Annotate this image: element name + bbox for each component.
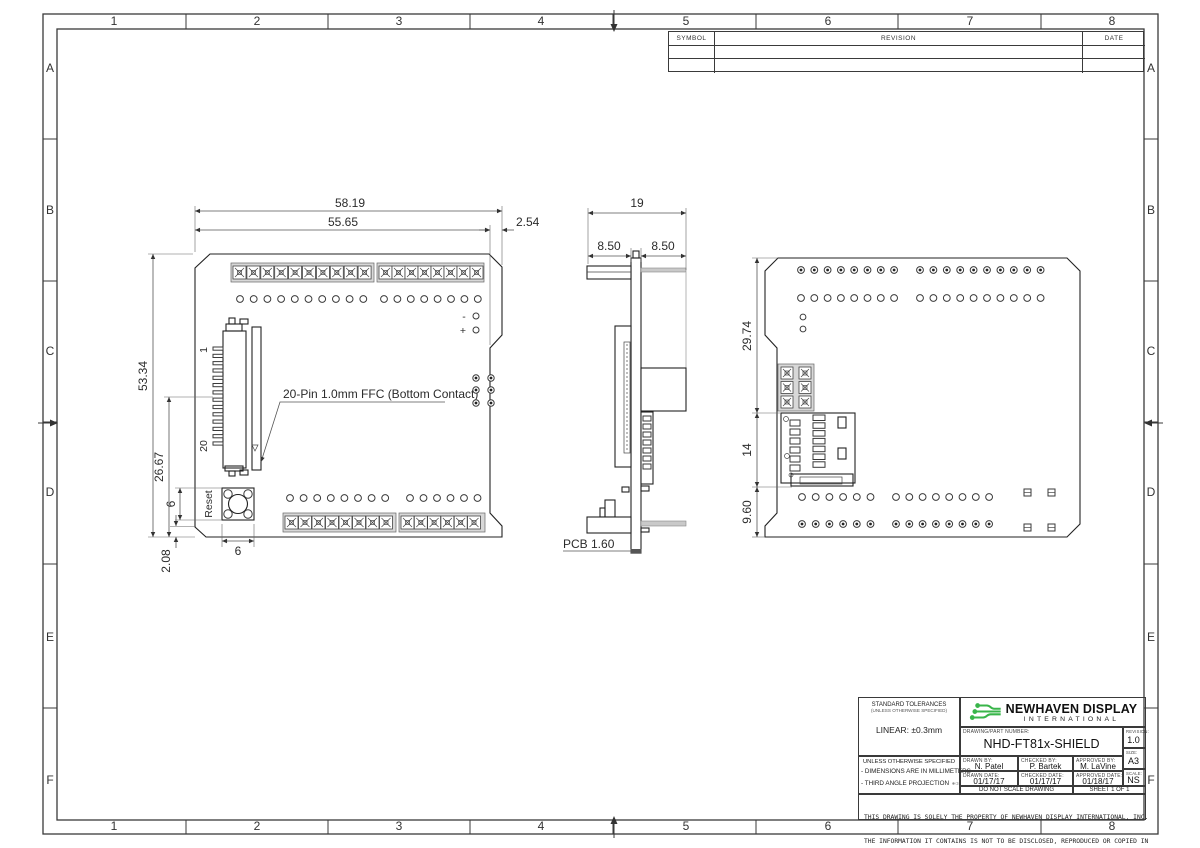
through-hole — [838, 295, 845, 302]
grid-row-label: C — [1147, 344, 1156, 358]
solder-pad-center — [869, 523, 872, 526]
dim-front-ffc-offset: 26.67 — [152, 452, 166, 482]
through-hole — [812, 494, 819, 501]
through-hole — [250, 296, 257, 303]
solder-pad-center — [842, 523, 845, 526]
contact — [643, 432, 651, 437]
contact — [643, 456, 651, 461]
grid-column-label: 1 — [111, 14, 118, 28]
grid-row-label: D — [46, 485, 55, 499]
ffc-side — [615, 326, 631, 467]
through-hole — [799, 494, 806, 501]
revision-row-cell — [715, 46, 1083, 59]
contact — [643, 448, 651, 453]
logo-cell: NEWHAVEN DISPLAY INTERNATIONAL — [960, 697, 1146, 727]
drawn-date-cell: DRAWN DATE: 01/17/17 — [960, 771, 1018, 786]
size-cell: SIZE: A3 — [1123, 748, 1146, 769]
through-hole — [800, 326, 806, 332]
solder-pad-center — [801, 523, 804, 526]
solder-pad-center — [895, 523, 898, 526]
dim-front-width-total: 58.19 — [335, 196, 365, 210]
do-not-scale-text: DO NOT SCALE DRAWING — [979, 787, 1054, 793]
contact — [790, 465, 800, 471]
through-hole — [853, 494, 860, 501]
contact — [213, 398, 223, 401]
solder-pad-center — [826, 269, 829, 272]
through-hole — [473, 313, 479, 319]
contact — [213, 369, 223, 372]
contact — [213, 384, 223, 387]
through-hole — [893, 494, 900, 501]
grid-column-label: 2 — [254, 14, 261, 28]
through-hole — [407, 296, 414, 303]
grid-column-label: 5 — [683, 14, 690, 28]
contact — [813, 423, 825, 429]
through-hole — [420, 495, 427, 502]
grid-row-label: B — [1147, 203, 1155, 217]
contact — [790, 456, 800, 462]
drawn-by-cell: DRAWN BY: N. Patel — [960, 756, 1018, 771]
revision-row-cell — [669, 59, 715, 73]
title-block: STANDARD TOLERANCES (UNLESS OTHERWISE SP… — [858, 697, 1146, 820]
note-projection: - THIRD ANGLE PROJECTION — [861, 780, 949, 787]
approved-by-value: M. LaVine — [1074, 762, 1122, 771]
through-hole — [447, 495, 454, 502]
solder-pad-center — [840, 269, 843, 272]
solder-pad-center — [1026, 269, 1029, 272]
contact — [643, 440, 651, 445]
through-hole — [1024, 295, 1031, 302]
grid-row-label: A — [1147, 61, 1155, 75]
through-hole — [314, 495, 321, 502]
contact — [213, 405, 223, 408]
dim-reset-width: 6 — [235, 544, 242, 558]
through-hole — [864, 295, 871, 302]
contact — [813, 415, 825, 421]
contact — [213, 362, 223, 365]
revision-value: 1.0 — [1124, 735, 1143, 745]
solder-pad-center — [828, 523, 831, 526]
revision-row-cell — [715, 59, 1083, 73]
approved-date-value: 01/18/17 — [1074, 777, 1122, 786]
sheet-cell: SHEET 1 OF 1 — [1073, 786, 1146, 794]
solder-pad-center — [919, 269, 922, 272]
solder-pad-center — [475, 402, 478, 405]
through-hole — [917, 295, 924, 302]
contact — [813, 454, 825, 460]
through-hole — [474, 495, 481, 502]
drawing-sheet: 1122334455667788AABBCCDDEEFF — [0, 0, 1200, 848]
part-number-cell: DRAWING/PART NUMBER: NHD-FT81x-SHIELD — [960, 727, 1123, 756]
dim-back-mid: 14 — [740, 443, 754, 457]
grid-column-label: 3 — [396, 819, 403, 833]
grid-row-label: E — [1147, 630, 1155, 644]
plus-label: + — [460, 325, 466, 337]
through-hole — [473, 327, 479, 333]
disclaimer-line-1: THIS DRAWING IS SOLELY THE PROPERTY OF N… — [864, 814, 1145, 822]
grid-row-label: D — [1147, 485, 1156, 499]
linear-tolerance: LINEAR: ±0.3mm — [859, 725, 959, 735]
contact — [213, 427, 223, 430]
side-view: 19 8.50 8.50 PCB 1.60 — [563, 196, 686, 553]
logo-company-sub: INTERNATIONAL — [1006, 716, 1138, 723]
through-hole — [930, 295, 937, 302]
center-mark-right — [1144, 420, 1163, 427]
sheet-of-text: SHEET 1 OF 1 — [1090, 787, 1130, 793]
through-hole — [474, 296, 481, 303]
dim-side-width: 19 — [630, 196, 644, 210]
note-millimeters: - DIMENSIONS ARE IN MILLIMETERS — [861, 768, 959, 775]
through-hole — [933, 494, 940, 501]
notes-cell: UNLESS OTHERWISE SPECIFIED - DIMENSIONS … — [858, 756, 960, 794]
solder-pad-center — [813, 269, 816, 272]
revision-row-cell — [669, 46, 715, 59]
ffc-pin20-label: 20 — [198, 440, 210, 452]
through-hole — [811, 295, 818, 302]
dim-side-left: 8.50 — [597, 239, 621, 253]
do-not-scale-cell: DO NOT SCALE DRAWING — [960, 786, 1073, 794]
contact — [213, 354, 223, 357]
grid-row-label: F — [1147, 773, 1154, 787]
through-hole — [959, 494, 966, 501]
contact — [213, 347, 223, 350]
through-hole — [360, 296, 367, 303]
through-hole — [305, 296, 312, 303]
through-hole — [919, 494, 926, 501]
contact — [790, 420, 800, 426]
through-hole — [382, 495, 389, 502]
revision-table: SYMBOL REVISION DATE — [668, 31, 1144, 72]
dim-pcb-thickness: PCB 1.60 — [563, 537, 615, 551]
contact — [213, 442, 223, 445]
contact — [643, 424, 651, 429]
grid-column-label: 6 — [825, 14, 832, 28]
grid-column-label: 2 — [254, 819, 261, 833]
solder-pad-center — [948, 523, 951, 526]
size-label: SIZE: — [1126, 750, 1137, 755]
solder-pad-center — [893, 269, 896, 272]
revision-col-revision: REVISION — [715, 32, 1083, 46]
solder-pad-center — [800, 269, 803, 272]
grid-row-label: A — [46, 61, 54, 75]
through-hole — [798, 295, 805, 302]
through-hole — [264, 296, 271, 303]
center-mark-left — [38, 420, 58, 427]
grid-column-label: 3 — [396, 14, 403, 28]
contact — [813, 446, 825, 452]
revision-label: REVISION: — [1126, 729, 1149, 734]
through-hole — [906, 494, 913, 501]
dim-back-lower: 9.60 — [740, 500, 754, 524]
dim-back-upper: 29.74 — [740, 321, 754, 351]
grid-column-label: 5 — [683, 819, 690, 833]
contact — [643, 416, 651, 421]
solder-pad-center — [853, 269, 856, 272]
contact — [213, 413, 223, 416]
third-angle-projection-icon — [952, 778, 959, 789]
through-hole — [434, 495, 441, 502]
drawn-by-value: N. Patel — [961, 762, 1017, 771]
drawn-date-value: 01/17/17 — [961, 777, 1017, 786]
scale-value: NS — [1124, 775, 1143, 785]
through-hole — [341, 495, 348, 502]
grid-column-label: 7 — [967, 14, 974, 28]
grid-column-label: 4 — [538, 14, 545, 28]
solder-pad-center — [490, 402, 493, 405]
ffc-connector — [223, 318, 261, 476]
through-hole — [333, 296, 340, 303]
solder-pad-center — [855, 523, 858, 526]
disclaimer-line-2: THE INFORMATION IT CONTAINS IS NOT TO BE… — [864, 838, 1145, 846]
solder-pad-center — [986, 269, 989, 272]
grid-column-label: 6 — [825, 819, 832, 833]
size-value: A3 — [1124, 756, 1143, 766]
contact — [790, 447, 800, 453]
dim-edge-offset: 2.08 — [159, 549, 173, 573]
solder-pad-center — [974, 523, 977, 526]
grid-row-label: B — [46, 203, 54, 217]
through-hole — [986, 494, 993, 501]
checked-by-value: P. Bartek — [1019, 762, 1072, 771]
contact — [213, 435, 223, 438]
solder-pad-center — [972, 269, 975, 272]
through-hole — [972, 494, 979, 501]
solder-pad-center — [1012, 269, 1015, 272]
through-hole — [461, 296, 468, 303]
tolerances-subtitle: (UNLESS OTHERWISE SPECIFIED) — [859, 708, 959, 713]
part-number-label: DRAWING/PART NUMBER: — [963, 729, 1030, 735]
grid-column-label: 4 — [538, 819, 545, 833]
solder-pad-center — [921, 523, 924, 526]
solder-pad-center — [866, 269, 869, 272]
checked-date-cell: CHECKED DATE: 01/17/17 — [1018, 771, 1073, 786]
through-hole — [300, 495, 307, 502]
newhaven-logo-icon — [969, 700, 1001, 724]
ffc-callout-label: 20-Pin 1.0mm FFC (Bottom Contact) — [283, 387, 478, 401]
contact — [790, 429, 800, 435]
checked-by-cell: CHECKED BY: P. Bartek — [1018, 756, 1073, 771]
through-hole — [319, 296, 326, 303]
through-hole — [891, 295, 898, 302]
center-mark-bottom — [611, 816, 618, 838]
through-hole — [448, 296, 455, 303]
reset-label: Reset — [203, 490, 215, 518]
through-hole — [867, 494, 874, 501]
solder-pad-center — [932, 269, 935, 272]
through-hole — [368, 495, 375, 502]
revision-col-date: DATE — [1083, 32, 1145, 46]
through-hole — [851, 295, 858, 302]
grid-row-label: F — [46, 773, 53, 787]
contact — [213, 420, 223, 423]
solder-pad-center — [959, 269, 962, 272]
through-hole — [421, 296, 428, 303]
solder-pad-center — [490, 377, 493, 380]
grid-row-label: C — [46, 344, 55, 358]
contact — [813, 462, 825, 468]
through-hole — [997, 295, 1004, 302]
logo-company-name: NEWHAVEN DISPLAY — [1006, 702, 1138, 716]
through-hole — [278, 296, 285, 303]
solder-pad-center — [945, 269, 948, 272]
solder-pad-center — [908, 523, 911, 526]
revision-cell: REVISION: 1.0 — [1123, 727, 1146, 748]
tolerances-cell: STANDARD TOLERANCES (UNLESS OTHERWISE SP… — [858, 697, 960, 756]
solder-pad-center — [475, 377, 478, 380]
scale-cell: SCALE: NS — [1123, 769, 1146, 786]
through-hole — [1037, 295, 1044, 302]
solder-pad-center — [999, 269, 1002, 272]
through-hole — [984, 295, 991, 302]
solder-pad-center — [988, 523, 991, 526]
solder-pad-center — [1039, 269, 1042, 272]
contact — [790, 438, 800, 444]
contact — [213, 391, 223, 394]
contact — [213, 376, 223, 379]
through-hole — [943, 295, 950, 302]
through-hole — [970, 295, 977, 302]
dim-front-height-total: 53.34 — [136, 361, 150, 391]
contact — [813, 431, 825, 437]
through-hole — [840, 494, 847, 501]
through-hole — [434, 296, 441, 303]
contact — [643, 464, 651, 469]
through-hole — [877, 295, 884, 302]
through-hole — [826, 494, 833, 501]
revision-row-cell — [1083, 59, 1145, 73]
through-hole — [800, 314, 806, 320]
part-number: NHD-FT81x-SHIELD — [961, 737, 1122, 751]
solder-pad-center — [814, 523, 817, 526]
revision-row-cell — [1083, 46, 1145, 59]
approved-by-cell: APPROVED BY: M. LaVine — [1073, 756, 1123, 771]
through-hole — [946, 494, 953, 501]
dim-front-width-inner: 55.65 — [328, 215, 358, 229]
through-hole — [1010, 295, 1017, 302]
ffc-pin1-label: 1 — [198, 347, 210, 353]
through-hole — [407, 495, 414, 502]
through-hole — [394, 296, 401, 303]
disclaimer-cell: THIS DRAWING IS SOLELY THE PROPERTY OF N… — [858, 794, 1146, 820]
grid-column-label: 1 — [111, 819, 118, 833]
revision-col-symbol: SYMBOL — [669, 32, 715, 46]
solder-pad-center — [475, 389, 478, 392]
grid-column-label: 8 — [1109, 14, 1116, 28]
solder-pad-center — [935, 523, 938, 526]
through-hole — [824, 295, 831, 302]
through-hole — [355, 495, 362, 502]
checked-date-value: 01/17/17 — [1019, 777, 1072, 786]
through-hole — [381, 296, 388, 303]
dim-front-offset: 2.54 — [516, 215, 540, 229]
solder-pad-center — [490, 389, 493, 392]
dim-side-right: 8.50 — [651, 239, 675, 253]
approved-date-cell: APPROVED DATE: 01/18/17 — [1073, 771, 1123, 786]
dim-reset-height: 6 — [164, 500, 178, 507]
through-hole — [346, 296, 353, 303]
through-hole — [291, 296, 298, 303]
notes-title: UNLESS OTHERWISE SPECIFIED — [859, 759, 959, 765]
through-hole — [327, 495, 334, 502]
grid-row-label: E — [46, 630, 54, 644]
through-hole — [957, 295, 964, 302]
solder-pad-center — [961, 523, 964, 526]
through-hole — [461, 495, 468, 502]
through-hole — [287, 495, 294, 502]
contact — [813, 438, 825, 444]
solder-pad-center — [879, 269, 882, 272]
minus-label: - — [462, 311, 466, 323]
through-hole — [237, 296, 244, 303]
